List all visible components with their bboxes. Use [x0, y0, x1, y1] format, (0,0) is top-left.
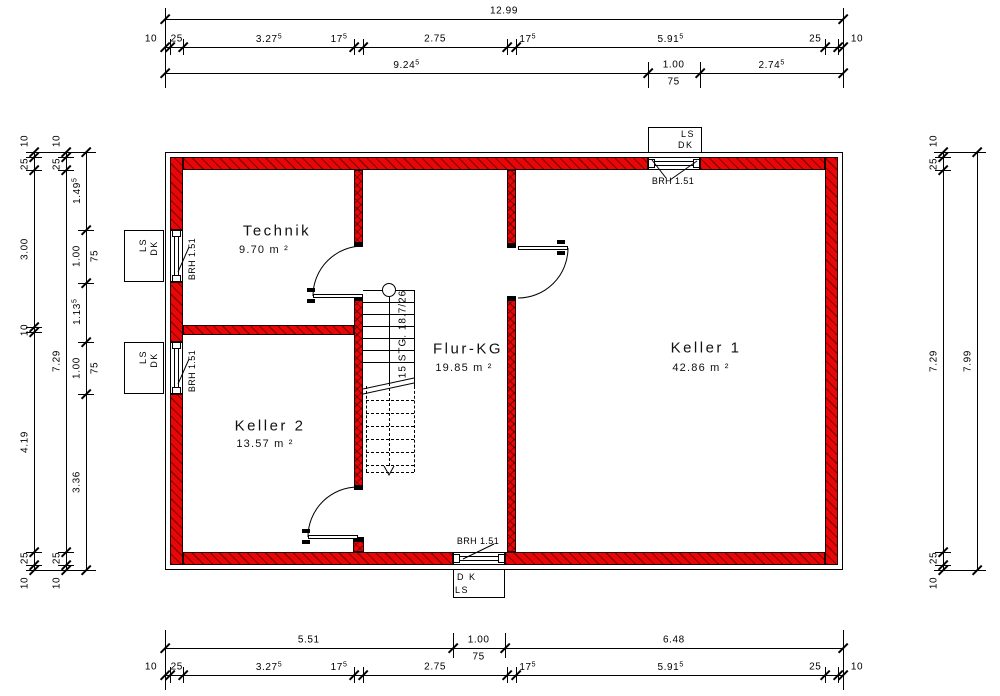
- light-shaft-label: DK: [149, 352, 159, 368]
- light-shaft-label: LS: [138, 238, 148, 252]
- dimension-label: 175: [519, 661, 535, 673]
- dimension-label: 1.00: [663, 60, 685, 71]
- door-handle-glyph: [557, 251, 565, 255]
- dimension-label: 10: [929, 135, 940, 147]
- dimension-label: 175: [519, 33, 535, 45]
- wall-jamb-cap: [507, 243, 516, 248]
- wall-jamb-cap: [507, 296, 516, 301]
- light-shaft-label: LS: [681, 129, 695, 139]
- window-glass-line: [655, 161, 693, 162]
- dimension-label: 6.48: [663, 635, 685, 646]
- dimension-label: 1.135: [71, 299, 83, 325]
- window-frame-block: [498, 554, 505, 563]
- dimension-label: 5.915: [657, 661, 683, 673]
- dimension-label: 10: [52, 577, 63, 589]
- dimension-label: 3.00: [20, 238, 31, 260]
- extension-line: [165, 630, 166, 690]
- brh-label: BRH 1.51: [187, 350, 197, 392]
- extension-line: [165, 8, 166, 88]
- extension-line: [843, 630, 844, 690]
- brh-label: BRH 1.51: [457, 536, 499, 546]
- window-frame-block: [693, 159, 700, 168]
- dimension-line: [165, 19, 843, 20]
- wall-segment: [507, 170, 516, 247]
- dimension-label: 10: [929, 577, 940, 589]
- dimension-line: [943, 152, 944, 570]
- stair-tread-dashed: [366, 465, 414, 466]
- window-glass-line: [174, 349, 175, 387]
- dimension-label: 25: [20, 158, 31, 170]
- light-shaft-label: DK: [149, 240, 159, 256]
- extension-line: [934, 152, 986, 153]
- dimension-label: 25: [20, 552, 31, 564]
- dimension-label: 4.19: [20, 431, 31, 453]
- dimension-label: 10: [20, 324, 31, 336]
- dimension-line: [977, 152, 978, 570]
- extension-line: [934, 570, 986, 571]
- dimension-label: 25: [52, 158, 63, 170]
- light-shaft-label: LS: [455, 585, 469, 595]
- wall-jamb-cap: [354, 242, 363, 247]
- building-outline: [165, 152, 843, 570]
- dimension-label: 10: [145, 34, 157, 45]
- room-area-label: 19.85 m ²: [435, 362, 492, 374]
- stair-left-edge-dashed: [366, 386, 367, 472]
- dimension-label: 9.245: [393, 59, 419, 71]
- dimension-label: 1.00: [468, 635, 490, 646]
- door-handle-glyph: [302, 540, 310, 544]
- window-glass-line: [655, 165, 693, 166]
- dimension-label: 1.00: [72, 357, 83, 379]
- window-frame-block: [648, 159, 655, 168]
- dimension-line: [165, 73, 843, 74]
- dimension-label: 7.99: [963, 350, 974, 372]
- stair-tread-dashed: [366, 413, 414, 414]
- dimension-label: 25: [52, 552, 63, 564]
- dimension-label: 7.29: [52, 350, 63, 372]
- dimension-line: [34, 152, 35, 570]
- dimension-sub-label: 75: [90, 250, 101, 262]
- dimension-label: 3.36: [72, 471, 83, 493]
- room-area-label: 9.70 m ²: [239, 244, 289, 256]
- door-leaf: [308, 535, 358, 539]
- dimension-label: 175: [331, 33, 347, 45]
- dimension-label: 25: [809, 34, 821, 45]
- dimension-label: 25: [929, 552, 940, 564]
- window-glass-line: [174, 237, 175, 275]
- extension-line: [26, 152, 96, 153]
- dimension-label: 12.99: [490, 6, 518, 17]
- dimension-label: 10: [851, 34, 863, 45]
- dimension-label: 10: [20, 577, 31, 589]
- stair-tread-dashed: [366, 400, 414, 401]
- brh-label: BRH 1.51: [652, 176, 694, 186]
- wall-jamb-cap: [354, 485, 363, 490]
- extension-line: [700, 62, 701, 88]
- window-glass-line: [460, 556, 498, 557]
- window-frame-block: [172, 230, 181, 237]
- dimension-line: [86, 152, 87, 570]
- window-frame-block: [453, 554, 460, 563]
- light-shaft-label: D K: [457, 572, 477, 582]
- dimension-label: 10: [851, 662, 863, 673]
- room-name-label: Flur-KG: [433, 341, 503, 358]
- stair-tread-dashed: [366, 426, 414, 427]
- stair-walkline-start-circle: [382, 283, 396, 297]
- wall-segment: [505, 552, 825, 565]
- dimension-label: 10: [145, 662, 157, 673]
- stair-label: 15 STG. 18.7/26: [398, 290, 409, 378]
- door-leaf: [313, 294, 363, 298]
- window-frame-block: [172, 342, 181, 349]
- dimension-label: 3.275: [256, 33, 282, 45]
- extension-line: [453, 633, 454, 658]
- extension-line: [26, 570, 96, 571]
- wall-segment: [183, 157, 648, 170]
- wall-segment: [354, 170, 363, 247]
- stair-bottom-edge-dashed: [366, 472, 414, 473]
- room-name-label: Keller 1: [671, 340, 742, 357]
- dimension-label: 2.75: [424, 34, 446, 45]
- dimension-sub-label: 75: [667, 77, 679, 88]
- extension-line: [505, 633, 506, 658]
- dimension-label: 5.915: [657, 33, 683, 45]
- door-handle-glyph: [307, 288, 315, 292]
- wall-segment: [183, 552, 453, 565]
- stair-right-edge-dashed: [414, 386, 415, 472]
- door-handle-glyph: [557, 240, 565, 244]
- wall-segment: [354, 296, 363, 490]
- extension-line: [843, 8, 844, 88]
- wall-segment: [183, 325, 354, 335]
- dimension-label: 25: [171, 662, 183, 673]
- light-shaft-label: LS: [138, 350, 148, 364]
- brh-label: BRH 1.51: [187, 238, 197, 280]
- room-area-label: 42.86 m ²: [672, 362, 729, 374]
- light-shaft-label: DK: [678, 140, 694, 150]
- wall-segment: [170, 394, 183, 565]
- dimension-sub-label: 75: [473, 652, 485, 663]
- window-glass-line: [178, 349, 179, 387]
- dimension-label: 3.275: [256, 661, 282, 673]
- dimension-sub-label: 75: [90, 362, 101, 374]
- door-handle-glyph: [307, 299, 315, 303]
- room-area-label: 13.57 m ²: [236, 438, 293, 450]
- stair-right-edge: [414, 290, 415, 386]
- wall-segment: [825, 157, 838, 565]
- extension-line: [648, 62, 649, 88]
- dimension-label: 7.29: [929, 350, 940, 372]
- dimension-label: 25: [809, 662, 821, 673]
- window-glass-line: [178, 237, 179, 275]
- wall-segment: [507, 296, 516, 552]
- dimension-label: 1.495: [71, 178, 83, 204]
- door-leaf: [518, 246, 568, 250]
- room-name-label: Keller 2: [235, 418, 306, 435]
- stair-tread-dashed: [366, 452, 414, 453]
- wall-segment: [170, 157, 183, 230]
- dimension-label: 1.00: [72, 245, 83, 267]
- wall-segment: [170, 282, 183, 342]
- stair-tread-dashed: [366, 439, 414, 440]
- dimension-label: 2.75: [424, 662, 446, 673]
- dimension-label: 25: [929, 158, 940, 170]
- dimension-label: 25: [171, 34, 183, 45]
- dimension-label: 2.745: [758, 59, 784, 71]
- room-name-label: Technik: [243, 223, 311, 240]
- dimension-label: 175: [331, 661, 347, 673]
- window-frame-block: [172, 387, 181, 394]
- stair-walk-line: [389, 297, 390, 383]
- wall-segment: [700, 157, 825, 170]
- dimension-label: 10: [52, 135, 63, 147]
- window-frame-block: [172, 275, 181, 282]
- window-glass-line: [460, 560, 498, 561]
- floor-plan-canvas: LSDKBRH 1.51D KLSBRH 1.51LSDKBRH 1.51LSD…: [0, 0, 1000, 696]
- stair-walk-line-dashed: [389, 383, 390, 466]
- dimension-label: 5.51: [298, 635, 320, 646]
- door-handle-glyph: [302, 529, 310, 533]
- dimension-label: 10: [20, 135, 31, 147]
- dimension-line: [66, 152, 67, 570]
